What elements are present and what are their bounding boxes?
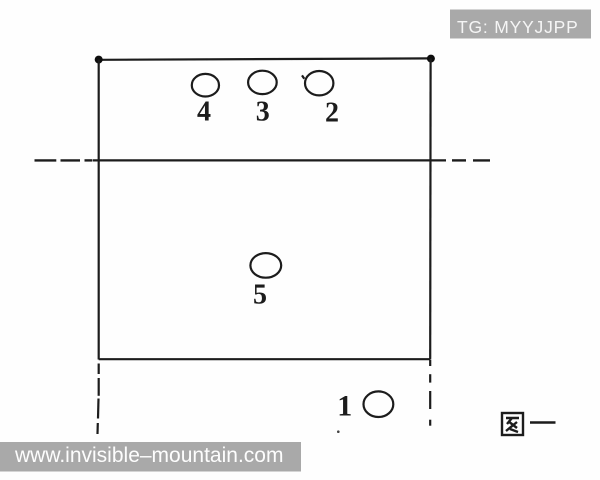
svg-text:5: 5 [253,280,267,311]
svg-text:1: 1 [337,390,352,423]
svg-text:3: 3 [256,97,270,128]
svg-text:2: 2 [325,97,339,128]
svg-text:www.invisible–mountain.com: www.invisible–mountain.com [14,444,283,467]
svg-text:TG: MYYJJPP: TG: MYYJJPP [457,17,579,37]
svg-text:4: 4 [197,97,211,128]
